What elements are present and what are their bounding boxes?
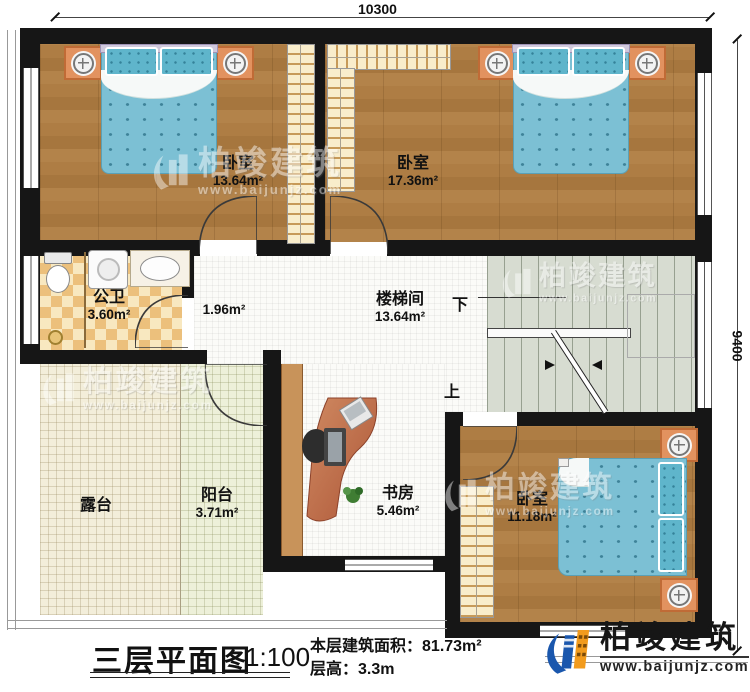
dimension-right-value: 9400 — [730, 330, 746, 361]
bedroom2-nightstand-right — [628, 46, 666, 80]
lamp-icon — [73, 53, 94, 74]
lamp-icon — [225, 53, 246, 74]
bedroom2-closet-top — [327, 44, 451, 70]
shower-partition — [84, 252, 86, 348]
wall-bathroom-bottom — [20, 350, 207, 364]
dimension-top-value: 10300 — [358, 1, 397, 17]
lamp-icon — [669, 435, 690, 456]
railing-left-outer — [7, 30, 8, 630]
railing-bottom-outer — [7, 620, 447, 621]
floor-plan: 10300 9400 — [0, 0, 750, 692]
bedroom1-bed — [100, 44, 218, 174]
floor-drain-icon — [48, 330, 63, 345]
railing-left-inner — [15, 30, 16, 630]
bedroom2-label: 卧室17.36m² — [388, 155, 438, 189]
study-label: 书房5.46m² — [377, 485, 420, 519]
brand-name: 柏竣建筑 — [600, 622, 749, 655]
brand-url: www.baijunjz.com — [600, 656, 749, 675]
bed-pillow — [160, 47, 213, 76]
bedroom1-closet — [287, 44, 315, 244]
bathroom-door — [135, 295, 188, 348]
bedroom1-door — [199, 196, 257, 254]
bedroom3-label: 卧室11.18m² — [507, 491, 557, 525]
lamp-icon — [487, 53, 508, 74]
bed-pillow — [658, 518, 684, 572]
terrace-floor — [40, 364, 180, 615]
hallway-label: 1.96m² — [203, 302, 246, 318]
brand-logo-icon — [540, 622, 596, 680]
balcony-door — [205, 364, 267, 426]
wall-stair-bottom-b — [517, 412, 712, 426]
window-bathroom-left — [23, 256, 39, 344]
dimension-line-top — [55, 17, 710, 18]
bedroom1-nightstand-left — [64, 46, 102, 80]
stair-landing-outline — [627, 294, 695, 358]
bedroom3-closet — [460, 486, 494, 618]
sink-basin — [140, 256, 180, 281]
terrace-balcony-divider — [180, 364, 181, 615]
stair-down-line — [478, 297, 566, 298]
bedroom3-nightstand-bottom — [660, 578, 698, 612]
bedroom2-closet-side — [327, 68, 355, 192]
wall-bedroom3-left — [445, 412, 460, 638]
toilet-icon — [44, 252, 72, 292]
stair-arrow-left — [592, 360, 602, 370]
bed-headboard — [558, 458, 569, 467]
bathroom-label: 公卫3.60m² — [88, 289, 131, 323]
bed-pillow — [658, 462, 684, 516]
lamp-icon — [669, 585, 690, 606]
window-stairs-right — [697, 262, 712, 408]
bed-pillow — [105, 47, 158, 76]
floor-area-line: 本层建筑面积：81.73m² — [310, 632, 482, 656]
brand-logo: 柏竣建筑 www.baijunjz.com — [540, 622, 749, 680]
washing-machine-icon — [88, 250, 128, 289]
balcony-label: 阳台3.71m² — [196, 487, 239, 521]
wall-top — [20, 28, 712, 44]
bed-pillow — [572, 47, 625, 76]
bedroom3-door — [463, 426, 517, 480]
stair-up-label: 上 — [444, 378, 460, 402]
bedroom1-label: 卧室13.64m² — [213, 155, 263, 189]
bedroom3-nightstand-top — [660, 428, 698, 462]
bedroom2-door — [330, 196, 388, 254]
stairwell-label: 楼梯间13.64m² — [375, 291, 425, 325]
plan-scale: 1:100 — [245, 642, 310, 673]
title-underline — [90, 672, 290, 678]
stair-down-label: 下 — [452, 291, 468, 315]
sink-counter — [130, 250, 190, 287]
window-study-bottom — [345, 559, 433, 571]
floor-height-line: 层高：3.3m — [310, 655, 394, 679]
window-bedroom2-right — [697, 73, 712, 215]
stair-arrow-right — [545, 360, 555, 370]
plant-icon — [343, 487, 363, 503]
lamp-icon — [637, 53, 658, 74]
wall-bedrooms-bottom-c — [387, 240, 695, 256]
window-bedroom1-left — [23, 68, 39, 188]
railing-bottom-inner — [7, 628, 447, 629]
bedroom3-bed — [558, 458, 696, 576]
bedroom2-nightstand-left — [478, 46, 516, 80]
terrace-label: 露台 — [80, 497, 112, 515]
bed-pillow — [517, 47, 570, 76]
bedroom1-nightstand-right — [216, 46, 254, 80]
bedroom2-bed — [512, 44, 630, 174]
